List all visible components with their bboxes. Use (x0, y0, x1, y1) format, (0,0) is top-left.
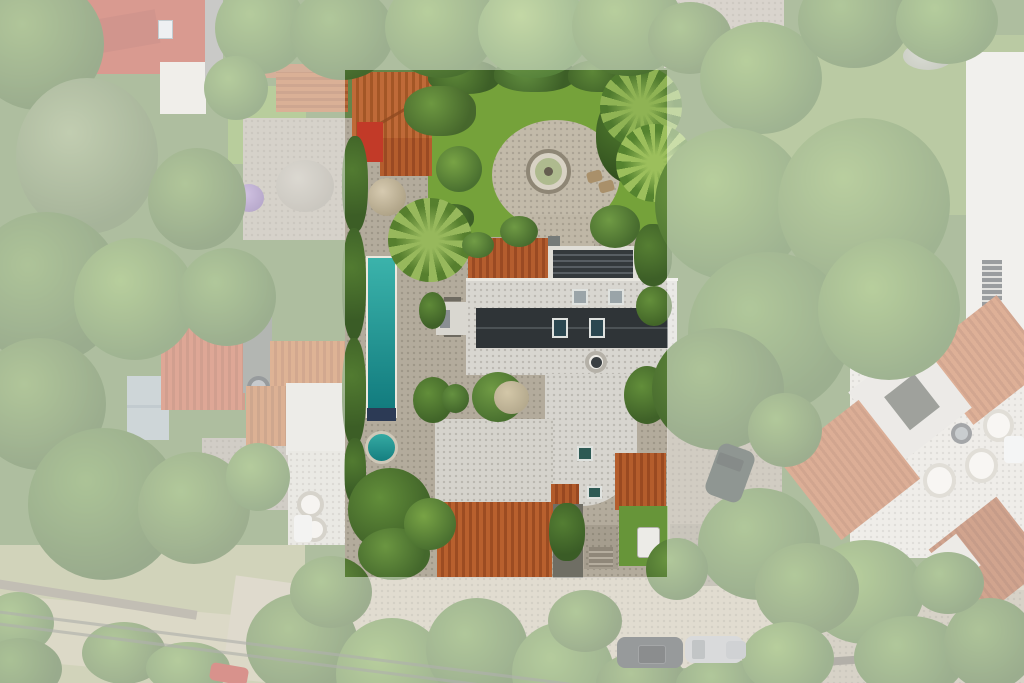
plaza-bush-s (500, 216, 538, 247)
house-roof-left-wing (435, 419, 553, 504)
roof-vent-center (591, 357, 602, 368)
plaza-bush-s2 (462, 232, 494, 258)
teal-skylight-2 (587, 486, 602, 499)
fountain-center (544, 167, 553, 176)
roof-skybox-2 (608, 289, 624, 305)
fan-palm (388, 198, 472, 282)
right-tile-roof (615, 453, 666, 510)
highlight-overlay-right (667, 70, 1024, 577)
aerial-property-photo (0, 0, 1024, 683)
highlight-overlay-bottom (0, 577, 1024, 683)
hedge-west-2 (342, 228, 366, 340)
lap-pool (366, 256, 397, 418)
hedge-west-3 (342, 338, 366, 446)
band-skylight-1 (552, 318, 568, 338)
teal-skylight-1 (577, 446, 593, 461)
roof-skybox-1 (572, 289, 588, 305)
pool-bush-3 (442, 384, 469, 413)
pool-cover (367, 408, 396, 421)
front-tile-roof (437, 502, 552, 577)
casita-bushes (404, 86, 476, 136)
casita-roof-lower (380, 138, 432, 176)
highlight-overlay-left (0, 70, 345, 577)
lot-bush-bl-3 (404, 498, 456, 550)
solar-band-seam (476, 327, 668, 329)
plaza-bush-se (590, 205, 640, 248)
hedge-west-1 (342, 136, 368, 232)
patio-court-umbrella (494, 381, 529, 414)
entry-chimney-steps (589, 547, 613, 567)
pool-bush-1 (419, 292, 446, 329)
highlight-overlay-top (0, 0, 1024, 70)
lawn-tree (436, 146, 482, 192)
band-skylight-2 (589, 318, 605, 338)
court-bush-left (549, 503, 585, 561)
spa-pool (365, 431, 398, 464)
